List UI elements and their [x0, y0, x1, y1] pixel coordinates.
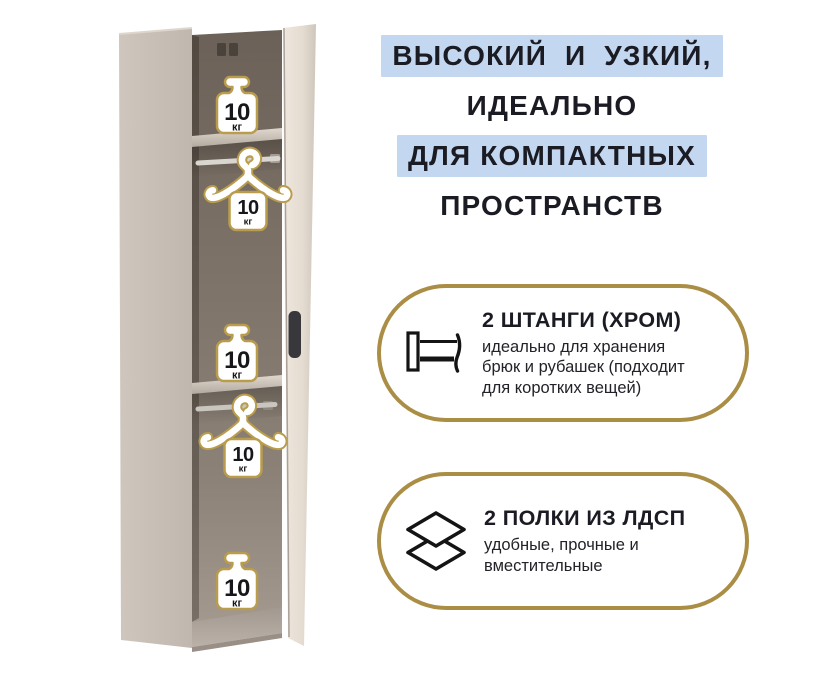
headline-line-3: ДЛЯ КОМПАКТНЫХ: [346, 131, 758, 181]
callout-title: 2 ПОЛКИ ИЗ ЛДСП: [484, 506, 685, 531]
callout-body-line: брюк и рубашек (подходит: [482, 357, 685, 377]
shelves-layers-icon: [403, 509, 469, 573]
callout-rods: 2 ШТАНГИ (ХРОМ) идеально для хранения бр…: [377, 284, 749, 422]
callout-body: идеально для хранения брюк и рубашек (по…: [482, 337, 685, 398]
wardrobe-inner-left-wall: [192, 35, 199, 622]
headline-text: ИДЕАЛЬНО: [456, 85, 649, 127]
wardrobe-illustration: 10 кг 10 кг 10 кг: [95, 15, 335, 670]
badge-unit: кг: [244, 217, 253, 228]
headline-line-1: ВЫСОКИЙ И УЗКИЙ,: [346, 31, 758, 81]
headline-text: ПРОСТРАНСТВ: [429, 185, 675, 227]
badge-unit: кг: [239, 464, 248, 475]
door-handle: [289, 311, 302, 358]
callout-body-line: вместительные: [484, 556, 685, 576]
headline: ВЫСОКИЙ И УЗКИЙ, ИДЕАЛЬНО ДЛЯ КОМПАКТНЫХ…: [346, 31, 758, 231]
headline-line-2: ИДЕАЛЬНО: [346, 81, 758, 131]
headline-text: ВЫСОКИЙ И УЗКИЙ,: [381, 35, 722, 77]
callout-body: удобные, прочные и вместительные: [484, 535, 685, 576]
hinge-icon: [229, 43, 238, 56]
clothes-rail-icon: [403, 329, 467, 377]
callout-body-line: удобные, прочные и: [484, 535, 685, 555]
headline-line-4: ПРОСТРАНСТВ: [346, 181, 758, 231]
badge-unit: кг: [232, 122, 243, 134]
badge-unit: кг: [232, 370, 243, 382]
headline-text: ДЛЯ КОМПАКТНЫХ: [397, 135, 707, 177]
hinge-icon: [217, 43, 226, 56]
callout-rods-text: 2 ШТАНГИ (ХРОМ) идеально для хранения бр…: [482, 308, 685, 398]
wardrobe-side-panel: [119, 28, 192, 648]
badge-unit: кг: [232, 598, 243, 610]
callout-shelves: 2 ПОЛКИ ИЗ ЛДСП удобные, прочные и вмест…: [377, 472, 749, 610]
callout-title: 2 ШТАНГИ (ХРОМ): [482, 308, 685, 333]
callout-body-line: для коротких вещей): [482, 378, 685, 398]
callout-shelves-text: 2 ПОЛКИ ИЗ ЛДСП удобные, прочные и вмест…: [484, 506, 685, 576]
callout-body-line: идеально для хранения: [482, 337, 685, 357]
